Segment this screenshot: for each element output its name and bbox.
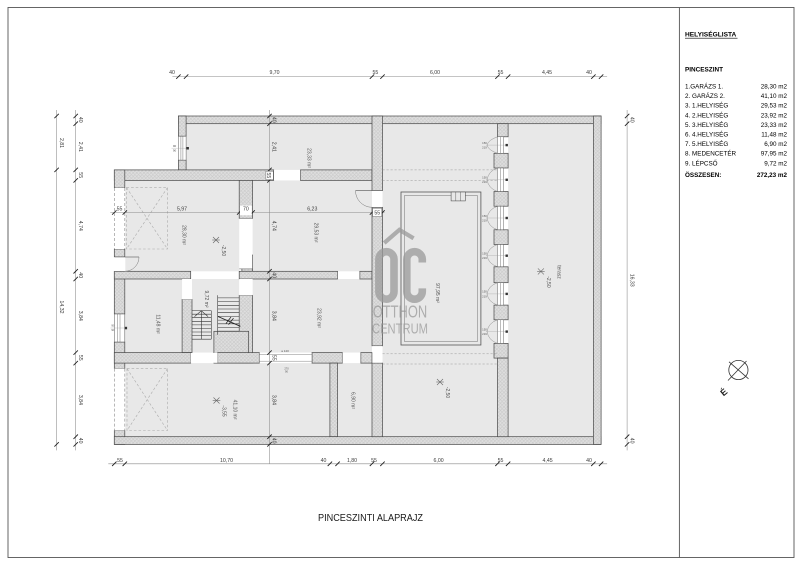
- svg-text:OTTHON: OTTHON: [373, 302, 428, 322]
- svg-text:41,10 m2: 41,10 m2: [761, 93, 788, 100]
- svg-text:40: 40: [77, 272, 83, 278]
- svg-text:29,53 m2: 29,53 m2: [761, 103, 788, 110]
- svg-text:2. GARÁZS 2.: 2. GARÁZS 2.: [685, 91, 725, 100]
- svg-text:28,30 m2: 28,30 m2: [761, 84, 788, 91]
- svg-text:219: 219: [482, 256, 487, 260]
- svg-text:6,00: 6,00: [430, 70, 440, 76]
- svg-text:3,84: 3,84: [77, 311, 83, 321]
- svg-text:ÖSSZESEN:: ÖSSZESEN:: [685, 170, 721, 179]
- svg-text:90: 90: [111, 324, 115, 328]
- svg-text:a 140: a 140: [281, 349, 289, 353]
- svg-text:40: 40: [586, 70, 592, 76]
- svg-text:5,97: 5,97: [177, 206, 187, 212]
- svg-text:97,95 m²: 97,95 m²: [434, 283, 440, 303]
- svg-text:55: 55: [77, 355, 83, 361]
- svg-text:150: 150: [482, 290, 487, 294]
- svg-text:HELYISÉGLISTA: HELYISÉGLISTA: [685, 30, 737, 39]
- svg-text:5. 3.HELYISÉG: 5. 3.HELYISÉG: [685, 120, 728, 129]
- svg-text:1.GARÁZS 1.: 1.GARÁZS 1.: [685, 82, 723, 91]
- svg-text:11,48 m2: 11,48 m2: [761, 132, 787, 139]
- svg-text:70: 70: [243, 206, 249, 212]
- svg-text:23,92 m²: 23,92 m²: [316, 308, 322, 328]
- svg-text:3. 1.HELYISÉG: 3. 1.HELYISÉG: [685, 101, 728, 110]
- svg-text:219: 219: [482, 294, 487, 298]
- svg-text:-2,50: -2,50: [220, 245, 226, 257]
- svg-text:55: 55: [117, 458, 123, 464]
- svg-text:10,70: 10,70: [220, 458, 233, 464]
- svg-text:40: 40: [586, 458, 592, 464]
- svg-text:terasz: terasz: [556, 265, 562, 279]
- svg-text:6. 4.HELYISÉG: 6. 4.HELYISÉG: [685, 130, 728, 139]
- svg-text:55: 55: [498, 458, 504, 464]
- svg-text:219: 219: [482, 180, 487, 184]
- svg-text:150: 150: [482, 252, 487, 256]
- svg-text:9. LÉPCSŐ: 9. LÉPCSŐ: [685, 158, 718, 167]
- svg-text:219: 219: [482, 146, 487, 150]
- svg-text:150: 150: [482, 214, 487, 218]
- svg-text:55: 55: [373, 70, 379, 76]
- svg-text:28,30 m²: 28,30 m²: [181, 225, 187, 245]
- svg-text:55: 55: [374, 211, 380, 217]
- svg-text:55: 55: [117, 206, 123, 212]
- svg-text:55: 55: [271, 355, 277, 361]
- svg-text:4. 2.HELYISÉG: 4. 2.HELYISÉG: [685, 110, 728, 119]
- svg-text:40: 40: [271, 438, 277, 444]
- svg-text:4,45: 4,45: [542, 70, 552, 76]
- svg-text:23,33 m²: 23,33 m²: [306, 148, 312, 168]
- svg-text:4,45: 4,45: [543, 458, 553, 464]
- svg-text:40: 40: [271, 117, 277, 123]
- svg-text:23,33 m2: 23,33 m2: [761, 122, 788, 129]
- svg-text:2,41: 2,41: [271, 142, 277, 152]
- svg-text:-2,50: -2,50: [444, 387, 450, 399]
- svg-text:2,41: 2,41: [77, 142, 83, 152]
- svg-text:55: 55: [265, 173, 271, 179]
- svg-text:90: 90: [111, 328, 115, 332]
- svg-text:40: 40: [628, 438, 634, 444]
- svg-text:29,53 m²: 29,53 m²: [313, 223, 319, 243]
- svg-text:-2,50: -2,50: [545, 276, 551, 288]
- svg-text:9,72 m2: 9,72 m2: [764, 160, 787, 167]
- svg-text:3,84: 3,84: [271, 311, 277, 321]
- svg-text:3,84: 3,84: [77, 395, 83, 405]
- svg-text:11,48 m²: 11,48 m²: [155, 314, 161, 334]
- svg-text:40: 40: [271, 272, 277, 278]
- svg-text:4,74: 4,74: [271, 221, 277, 231]
- svg-text:9,72 m²: 9,72 m²: [203, 291, 209, 308]
- svg-text:97,95 m2: 97,95 m2: [761, 151, 788, 158]
- svg-text:6,90 m²: 6,90 m²: [350, 392, 356, 409]
- svg-text:40: 40: [628, 117, 634, 123]
- svg-text:2,81: 2,81: [58, 138, 64, 148]
- svg-text:4,74: 4,74: [77, 221, 83, 231]
- svg-text:PINCESZINT: PINCESZINT: [685, 66, 723, 73]
- svg-text:CENTRUM: CENTRUM: [372, 322, 428, 338]
- svg-text:219: 219: [482, 332, 487, 336]
- svg-text:3,84: 3,84: [271, 395, 277, 405]
- svg-text:55: 55: [371, 458, 377, 464]
- svg-text:7. 5.HELYISÉG: 7. 5.HELYISÉG: [685, 139, 728, 148]
- svg-text:41,10 m²: 41,10 m²: [232, 400, 238, 420]
- svg-text:150: 150: [482, 141, 487, 145]
- svg-text:40: 40: [321, 458, 327, 464]
- svg-text:40: 40: [169, 70, 175, 76]
- svg-text:8. MEDENCETÉR: 8. MEDENCETÉR: [685, 149, 737, 158]
- svg-text:23,92 m2: 23,92 m2: [761, 112, 788, 119]
- svg-text:55: 55: [498, 70, 504, 76]
- svg-text:40: 40: [77, 117, 83, 123]
- svg-text:9,70: 9,70: [269, 70, 279, 76]
- svg-text:6,00: 6,00: [434, 458, 444, 464]
- svg-text:6,90 m2: 6,90 m2: [764, 141, 787, 148]
- svg-text:-3,55: -3,55: [221, 405, 227, 417]
- svg-text:6,23: 6,23: [307, 206, 317, 212]
- svg-text:90: 90: [173, 149, 177, 153]
- svg-text:55: 55: [77, 172, 83, 178]
- svg-text:219: 219: [482, 218, 487, 222]
- svg-text:150: 150: [482, 176, 487, 180]
- svg-text:272,23 m2: 272,23 m2: [757, 172, 788, 179]
- svg-text:40: 40: [77, 438, 83, 444]
- svg-text:16,33: 16,33: [628, 274, 634, 287]
- svg-text:150: 150: [482, 327, 487, 331]
- svg-text:PINCESZINTI ALAPRAJZ: PINCESZINTI ALAPRAJZ: [318, 513, 423, 524]
- svg-text:14,32: 14,32: [58, 301, 64, 314]
- svg-text:90: 90: [173, 144, 177, 148]
- svg-text:1,80: 1,80: [347, 458, 357, 464]
